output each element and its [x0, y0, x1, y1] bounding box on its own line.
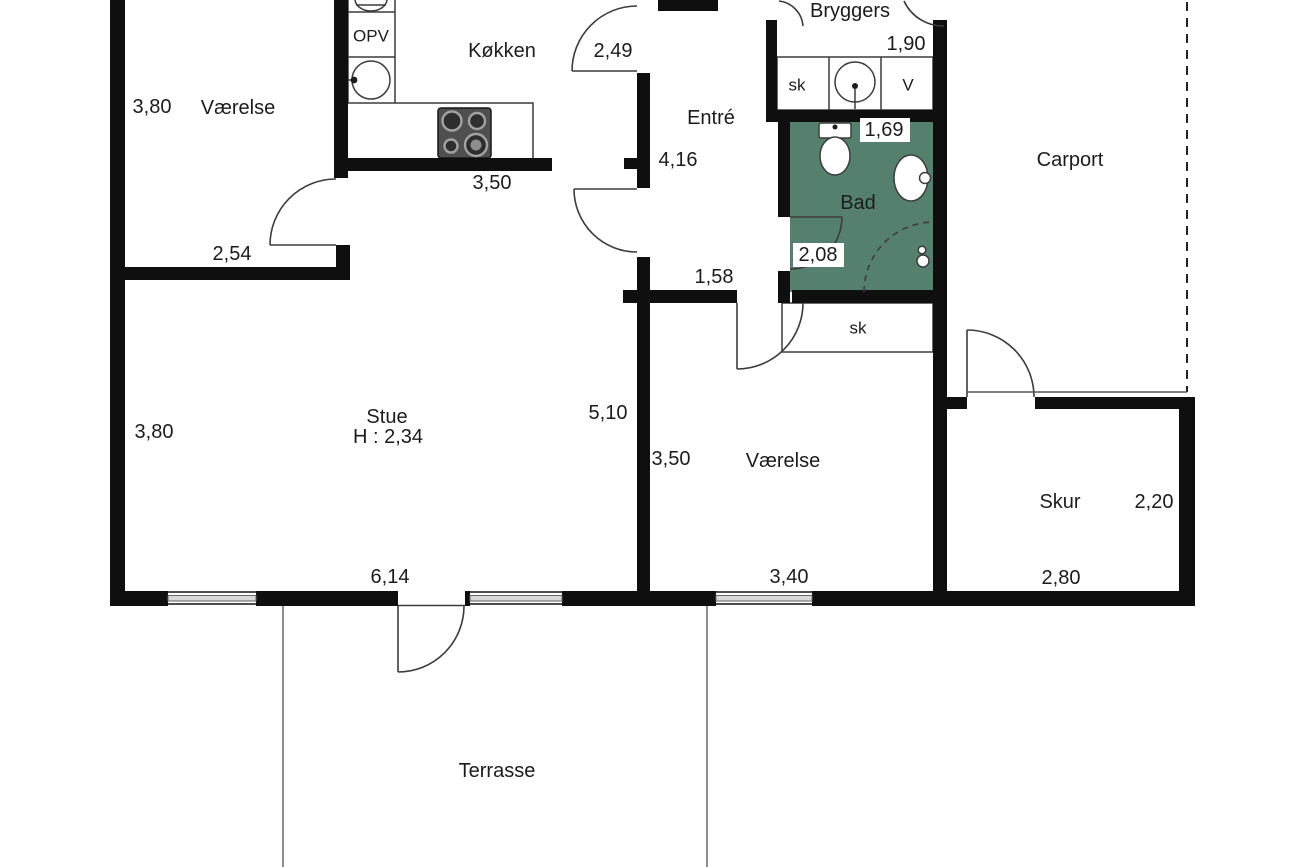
wall-skur-east	[1179, 397, 1195, 591]
door-arc-bryggers-left	[779, 1, 803, 26]
wall-stub-416	[624, 158, 637, 169]
label-terrasse: Terrasse	[459, 760, 536, 782]
wall-room-nw-stub	[336, 245, 350, 269]
terrace-door	[398, 591, 465, 672]
label-closet-sk: sk	[850, 319, 868, 338]
label-entre-dim: 4,16	[659, 149, 698, 171]
label-kitchen: Køkken	[468, 40, 536, 62]
wall-bad-south	[792, 290, 933, 303]
label-bad-width-dim: 1,69	[865, 119, 904, 141]
label-stue-height: H : 2,34	[353, 426, 423, 448]
label-bryggers: Bryggers	[810, 0, 890, 22]
label-room-s-dim: 3,50	[652, 448, 691, 470]
label-stue-south-dim: 6,14	[371, 566, 410, 588]
wall-room-nw-south	[110, 267, 350, 280]
cooktop-icon	[438, 108, 491, 158]
label-kitchen-wall-dim: 3,50	[473, 172, 512, 194]
wall-skur-north-left	[947, 397, 967, 409]
wall-skur-north-right	[1035, 397, 1181, 409]
labels: 3,80 Værelse Køkken 2,49 OPV 3,50 2,54 E…	[133, 0, 1174, 782]
window-icon	[168, 591, 256, 606]
wall-stue-divider	[637, 257, 650, 591]
label-room-nw: Værelse	[201, 97, 275, 119]
wall-left-outer	[110, 0, 125, 606]
label-hall-dim: 1,58	[695, 266, 734, 288]
label-skur-south-dim: 2,80	[1042, 567, 1081, 589]
floorplan-svg: 3,80 Værelse Køkken 2,49 OPV 3,50 2,54 E…	[0, 0, 1300, 867]
label-opv: OPV	[353, 27, 390, 46]
kitchen-washer-dot	[351, 77, 358, 84]
wall-kitchen-west	[334, 0, 348, 178]
wall-hall-south	[623, 290, 737, 303]
wall-east-house	[933, 20, 947, 591]
door-arc-skur	[967, 330, 1034, 397]
label-kitchen-door-dim: 2,49	[594, 40, 633, 62]
label-entre: Entré	[687, 107, 735, 129]
label-skur-width-dim: 2,20	[1135, 491, 1174, 513]
label-bad: Bad	[840, 192, 876, 214]
label-stue-east-dim: 5,10	[589, 402, 628, 424]
kitchen-washer-icon	[352, 61, 390, 99]
label-bryggers-dim: 1,90	[887, 33, 926, 55]
label-stue: Stue	[366, 406, 407, 428]
label-bad-door-dim: 2,08	[799, 244, 838, 266]
washing-machine-dot	[852, 83, 858, 89]
door-arc-entre	[574, 189, 637, 252]
label-room-s: Værelse	[746, 450, 820, 472]
label-carport: Carport	[1037, 149, 1104, 171]
label-bryggers-sk: sk	[789, 76, 807, 95]
label-bryggers-v: V	[902, 76, 914, 95]
wall-kitchen-south	[334, 158, 552, 171]
wall-bottom-outer	[110, 591, 1195, 606]
wall-top-segment	[658, 0, 718, 11]
floorplan-page: 3,80 Værelse Køkken 2,49 OPV 3,50 2,54 E…	[0, 0, 1300, 867]
label-room-nw-dim: 3,80	[133, 96, 172, 118]
door-arc-room-nw	[270, 179, 336, 245]
label-stue-west-dim: 3,80	[135, 421, 174, 443]
wall-bryggers-west	[766, 20, 777, 122]
wall-bad-west-lower	[778, 271, 790, 303]
kitchen-counter	[348, 0, 533, 158]
label-room-nw-width-dim: 2,54	[213, 243, 252, 265]
window-icon	[470, 591, 562, 606]
label-skur: Skur	[1039, 491, 1080, 513]
wall-bad-west-upper	[778, 122, 790, 217]
wall-entre-west-upper	[637, 73, 650, 188]
walls	[110, 0, 1195, 606]
label-room-s-south-dim: 3,40	[770, 566, 809, 588]
window-icon	[716, 591, 812, 606]
toilet-icon	[819, 123, 851, 175]
